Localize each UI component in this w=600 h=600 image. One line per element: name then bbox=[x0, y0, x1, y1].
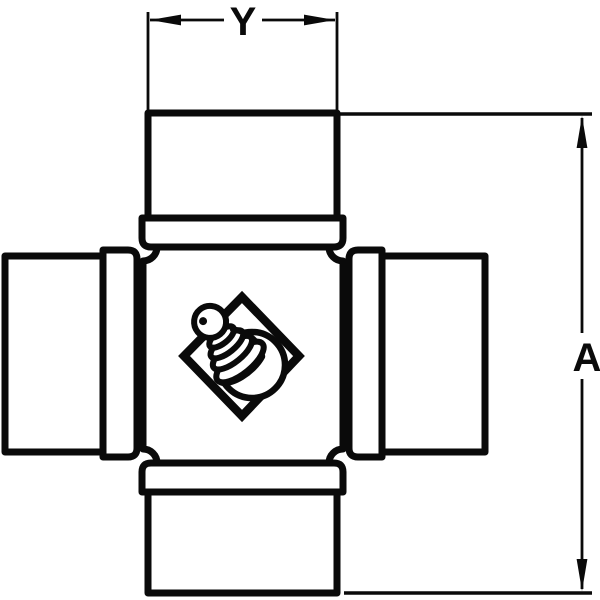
bottom-cup-collar bbox=[142, 463, 343, 492]
y-arrow-right-icon bbox=[304, 15, 335, 26]
bottom-bearing-cup bbox=[148, 492, 337, 593]
left-cup-collar bbox=[103, 250, 137, 457]
drawing-stage: Y A bbox=[0, 0, 600, 600]
right-bearing-cup bbox=[382, 256, 485, 452]
ujoint-cross-diagram: Y A bbox=[0, 0, 600, 600]
left-bearing-cup bbox=[5, 256, 103, 452]
a-dimension-label: A bbox=[573, 336, 600, 380]
right-cup-collar bbox=[349, 250, 382, 457]
a-arrow-down-icon bbox=[577, 559, 588, 591]
dimension-y: Y bbox=[148, 0, 337, 110]
y-dimension-label: Y bbox=[230, 0, 257, 44]
a-arrow-up-icon bbox=[577, 116, 588, 148]
top-bearing-cup bbox=[148, 113, 337, 218]
top-cup-collar bbox=[142, 218, 343, 247]
y-arrow-left-icon bbox=[150, 15, 181, 26]
